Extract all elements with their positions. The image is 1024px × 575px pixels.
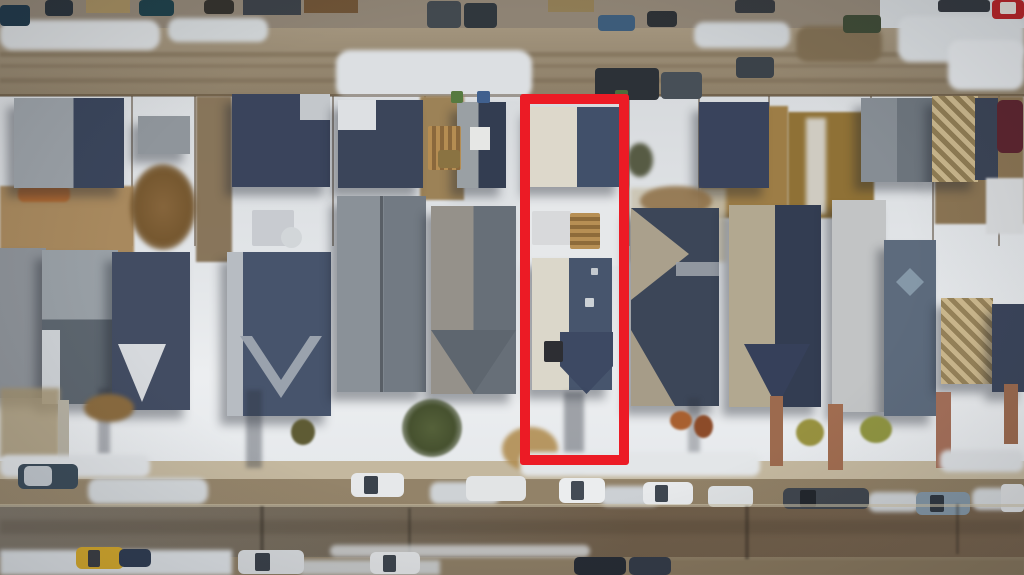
- property-highlight-box: [520, 94, 629, 465]
- photo-vignette: [0, 0, 1024, 575]
- aerial-photo: [0, 0, 1024, 575]
